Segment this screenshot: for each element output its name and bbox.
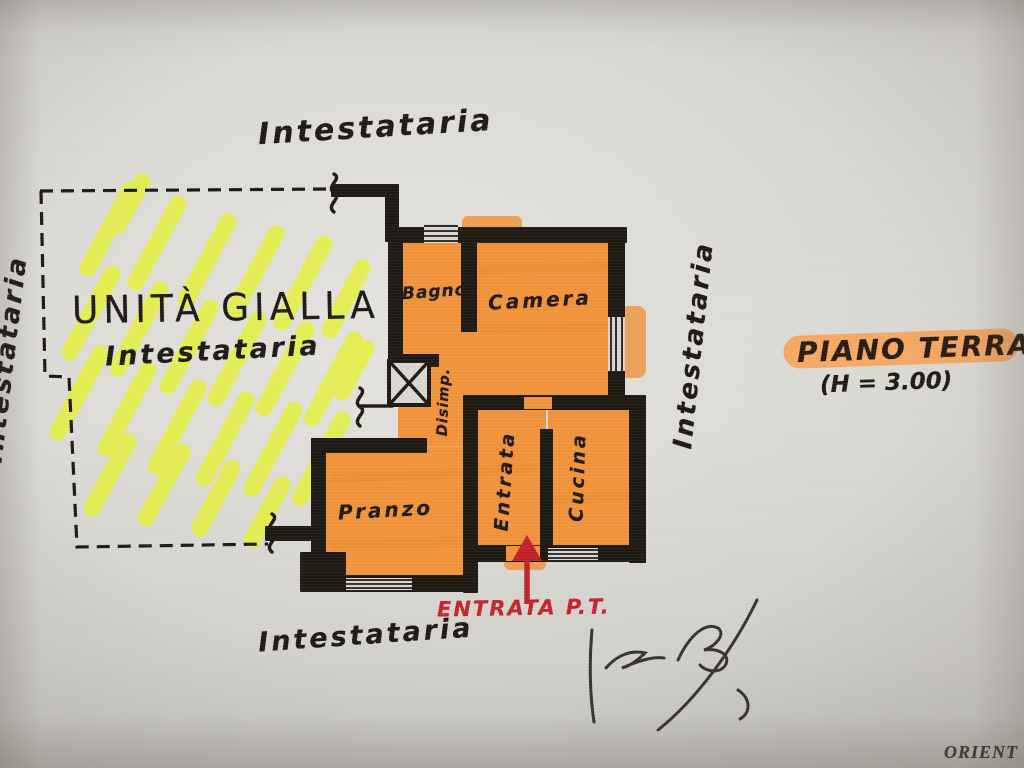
orientation-corner-text: ORIENT	[944, 742, 1018, 763]
room-label-disimpegno: Disimp.	[434, 357, 453, 448]
room-label-pranzo: Pranzo	[337, 496, 433, 525]
yellow-unit-title: UNITÀ GIALLA	[72, 284, 381, 332]
entrance-label: ENTRATA P.T.	[437, 594, 611, 621]
scanned-floor-plan-photo: Intestataria UNITÀ GIALLA Intestataria B…	[0, 0, 1024, 768]
shaft-x-box	[389, 361, 429, 405]
signature-scribble	[590, 600, 757, 730]
floor-height-note: (H = 3.00)	[820, 368, 953, 399]
